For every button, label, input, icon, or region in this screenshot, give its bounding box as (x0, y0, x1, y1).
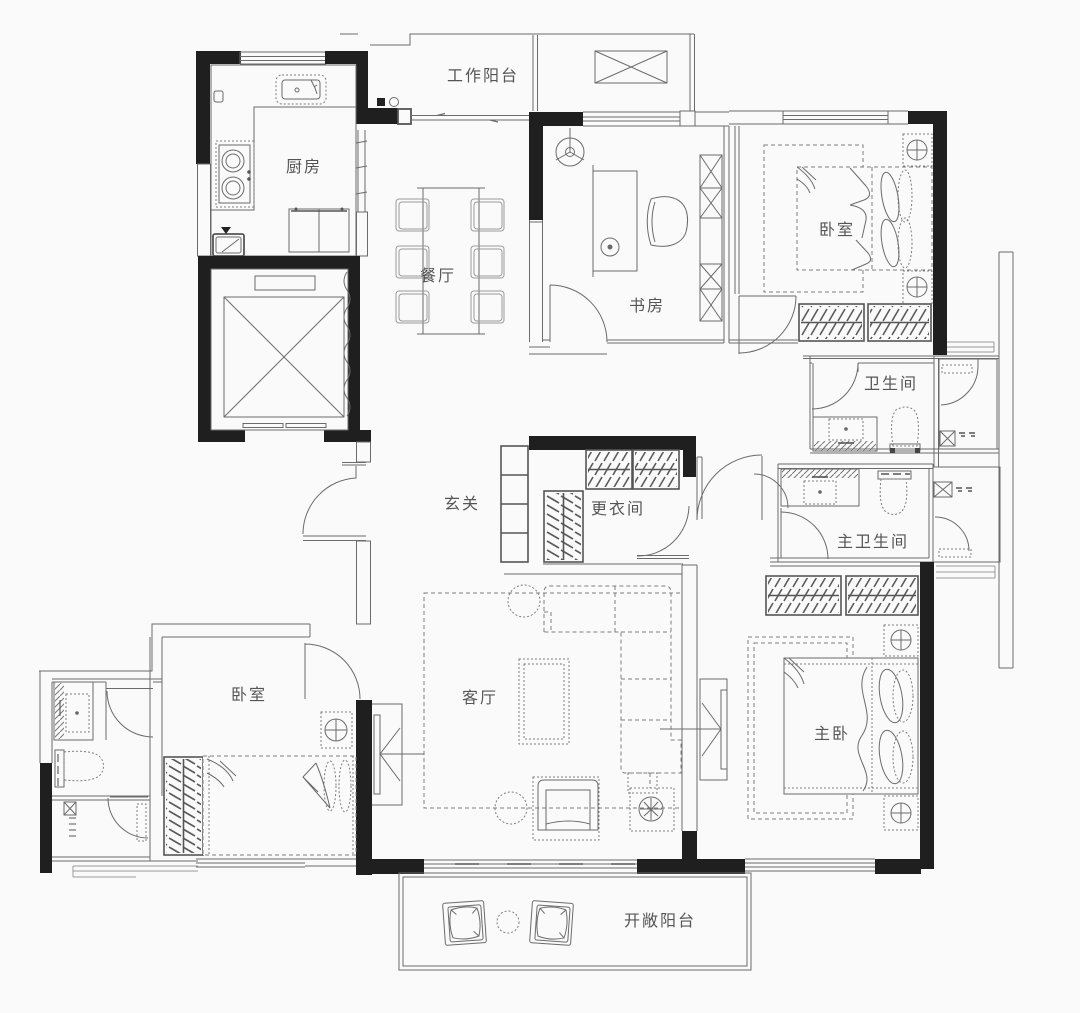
svg-text:更衣间: 更衣间 (591, 500, 645, 518)
svg-text:厨房: 厨房 (286, 158, 322, 176)
svg-text:主卧: 主卧 (814, 725, 850, 743)
svg-text:开敞阳台: 开敞阳台 (624, 912, 696, 930)
svg-text:玄关: 玄关 (444, 495, 480, 513)
svg-text:卧室: 卧室 (231, 686, 267, 704)
svg-text:主卫生间: 主卫生间 (837, 533, 909, 551)
svg-text:餐厅: 餐厅 (420, 267, 456, 285)
svg-text:卫生间: 卫生间 (864, 375, 918, 393)
svg-text:卧室: 卧室 (819, 221, 855, 239)
svg-text:客厅: 客厅 (462, 689, 498, 707)
svg-text:工作阳台: 工作阳台 (447, 67, 519, 85)
svg-text:书房: 书房 (629, 297, 665, 315)
